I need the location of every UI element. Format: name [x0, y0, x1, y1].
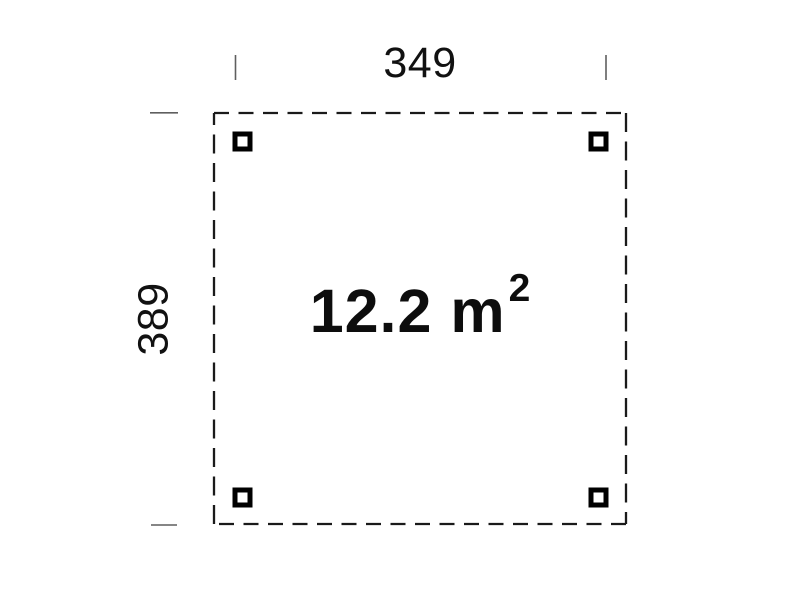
area-exponent: 2 [509, 269, 531, 308]
area-label: 12.2 m 2 [214, 281, 626, 342]
post-marker-bottom-left [235, 490, 250, 505]
height-dimension-label: 389 [130, 282, 177, 355]
floor-plan-canvas: 349 389 12.2 m 2 [0, 0, 800, 600]
post-marker-bottom-right [591, 490, 606, 505]
area-value: 12.2 m [310, 281, 506, 342]
post-marker-top-right [591, 134, 606, 149]
width-dimension-label: 349 [214, 40, 626, 87]
post-marker-top-left [235, 134, 250, 149]
